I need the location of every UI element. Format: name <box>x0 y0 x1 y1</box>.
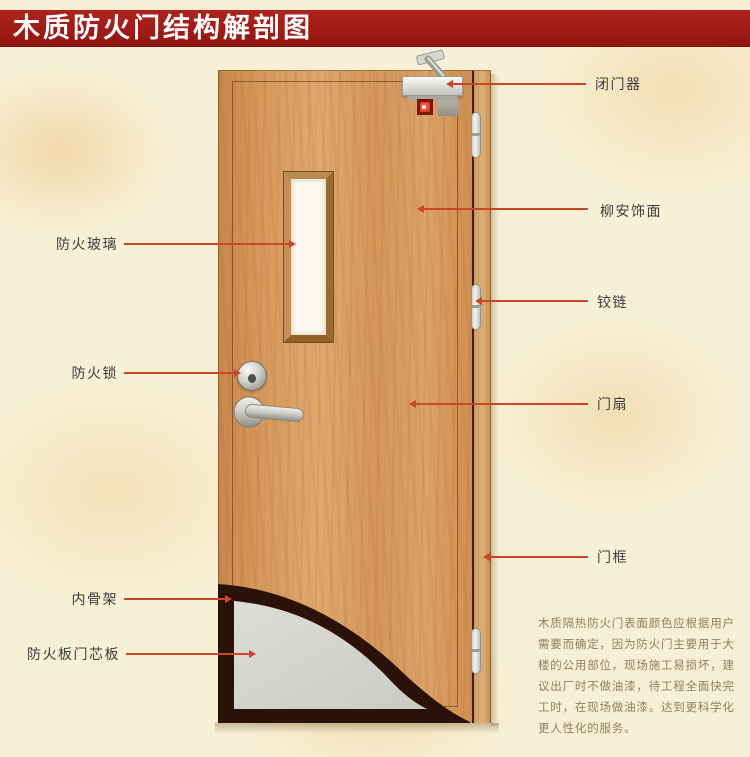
description-paragraph: 木质隔热防火门表面颜色应根据用户 需要而确定，因为防火门主要用于大 楼的公用部位… <box>538 614 735 740</box>
callout-line-door-leaf <box>415 403 588 405</box>
arrow-icon <box>483 553 490 561</box>
door-frame <box>472 70 491 723</box>
infographic-canvas: 木质防火门结构解剖图 <box>0 0 750 757</box>
fire-lock-cylinder <box>237 361 267 391</box>
description-line: 需要而确定，因为防火门主要用于大 <box>538 635 735 656</box>
title-banner: 木质防火门结构解剖图 <box>0 10 750 47</box>
label-fire-lock: 防火锁 <box>72 366 119 381</box>
hinge-knuckle <box>472 649 480 652</box>
label-core-board: 防火板门芯板 <box>27 647 120 662</box>
label-lauan-veneer: 柳安饰面 <box>600 204 662 219</box>
indicator-dot <box>422 105 426 109</box>
description-line: 更人性化的服务。 <box>538 719 735 740</box>
description-line: 工时，在现场做油漆。达到更科学化 <box>538 698 735 719</box>
callout-line-core-board <box>126 653 250 655</box>
fire-glass-window <box>284 172 333 342</box>
label-door-leaf: 门扇 <box>597 397 628 412</box>
label-fire-glass: 防火玻璃 <box>56 237 118 252</box>
glass-pane <box>291 179 326 335</box>
description-line: 议出厂时不做油漆，待工程全面快完 <box>538 677 735 698</box>
arrow-icon <box>409 400 416 408</box>
callout-line-hinge <box>481 300 588 302</box>
keyhole <box>248 374 256 383</box>
label-door-closer: 闭门器 <box>595 77 642 92</box>
arrow-icon <box>225 595 232 603</box>
label-door-frame: 门框 <box>597 550 628 565</box>
callout-line-inner-skeleton <box>124 598 226 600</box>
callout-line-door-frame <box>489 556 588 558</box>
arrow-icon <box>446 80 453 88</box>
cutaway-section <box>218 560 472 723</box>
arrow-icon <box>289 240 296 248</box>
callout-line-fire-lock <box>124 372 235 374</box>
door-shadow-right <box>491 74 499 726</box>
alarm-indicator <box>417 99 433 115</box>
callout-line-fire-glass <box>124 243 290 245</box>
label-plate <box>438 100 459 116</box>
callout-line-lauan-veneer <box>423 208 588 210</box>
hinge-middle <box>471 284 481 330</box>
door-closer <box>402 76 463 96</box>
hinge-top <box>471 112 481 158</box>
hinge-bottom <box>471 628 481 674</box>
hinge-knuckle <box>472 133 480 136</box>
arrow-icon <box>249 650 256 658</box>
callout-line-door-closer <box>452 83 586 85</box>
door-shadow-bottom <box>215 723 499 734</box>
description-line: 楼的公用部位，现场施工易损坏，建 <box>538 656 735 677</box>
arrow-icon <box>417 205 424 213</box>
page-title: 木质防火门结构解剖图 <box>13 10 313 47</box>
description-line: 木质隔热防火门表面颜色应根据用户 <box>538 614 735 635</box>
arrow-icon <box>234 369 241 377</box>
label-hinge: 铰链 <box>597 295 628 310</box>
core-board-shape <box>234 601 427 709</box>
label-inner-skeleton: 内骨架 <box>72 592 119 607</box>
arrow-icon <box>475 297 482 305</box>
hinge-knuckle <box>472 305 480 308</box>
door-handle <box>225 395 315 430</box>
